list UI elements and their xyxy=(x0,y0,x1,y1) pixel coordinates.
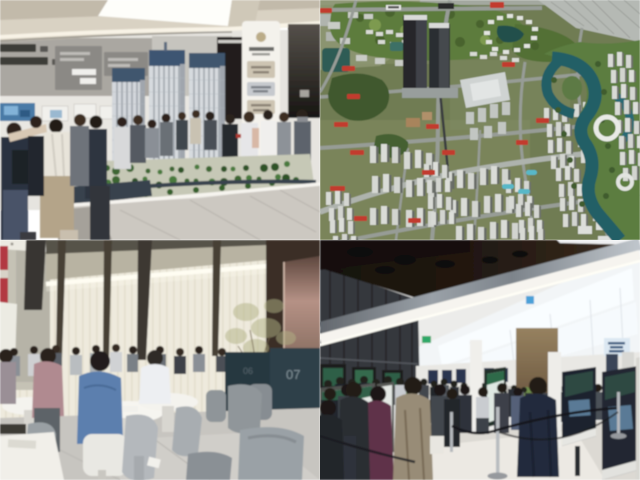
svg-text:07: 07 xyxy=(286,367,300,382)
svg-text:06: 06 xyxy=(243,366,253,376)
